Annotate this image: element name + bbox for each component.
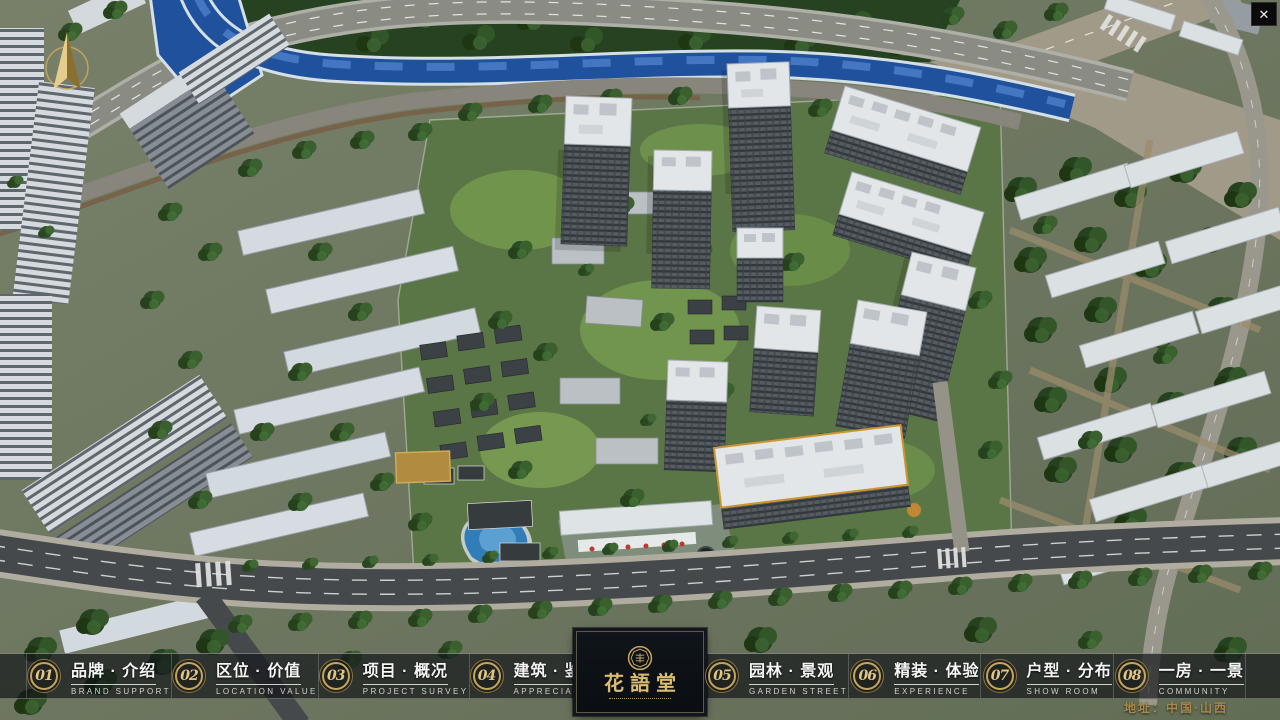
nav-subtitle: LOCATION VALUE [216, 687, 318, 696]
nav-group-right: 05 园林 · 景观 GARDEN STREET 06 精装 · 体验 EXPE… [704, 654, 1280, 698]
nav-badge-04: 04 [470, 659, 504, 693]
nav-title: 园林 · 景观 [749, 657, 834, 685]
presentation-stage: ✕ 01 品牌 · 介绍 BRAND SUPPORT 02 区位 · 价值 LO… [0, 0, 1280, 720]
nav-item-interior[interactable]: 06 精装 · 体验 EXPERIENCE [848, 654, 980, 698]
close-button[interactable]: ✕ [1251, 2, 1277, 26]
address-text: 地址：中国·山西 [1124, 699, 1228, 716]
logo-name: 花語堂 [598, 673, 682, 693]
nav-title: 项目 · 概况 [363, 657, 448, 685]
nav-item-brand[interactable]: 01 品牌 · 介绍 BRAND SUPPORT [26, 654, 171, 698]
bottom-nav-bar: 01 品牌 · 介绍 BRAND SUPPORT 02 区位 · 价值 LOCA… [0, 653, 1280, 699]
nav-badge-03: 03 [319, 659, 353, 693]
nav-subtitle: SHOW ROOM [1027, 687, 1101, 696]
atmosphere-tint [0, 0, 1280, 720]
nav-subtitle: EXPERIENCE [894, 687, 970, 696]
nav-badge-06: 06 [850, 659, 884, 693]
nav-subtitle: COMMUNITY [1159, 687, 1230, 696]
nav-item-garden[interactable]: 05 园林 · 景观 GARDEN STREET [704, 654, 848, 698]
nav-title: 区位 · 价值 [216, 657, 301, 685]
nav-group-left: 01 品牌 · 介绍 BRAND SUPPORT 02 区位 · 价值 LOCA… [0, 654, 576, 698]
nav-title: 户型 · 分布 [1027, 657, 1112, 685]
nav-subtitle: BRAND SUPPORT [71, 687, 171, 696]
nav-title: 精装 · 体验 [894, 657, 979, 685]
nav-title: 品牌 · 介绍 [71, 657, 156, 685]
nav-badge-05: 05 [705, 659, 739, 693]
logo-tagline-rule [609, 698, 671, 699]
nav-item-project[interactable]: 03 项目 · 概况 PROJECT SURVEY [318, 654, 469, 698]
compass-icon [36, 28, 98, 102]
nav-item-floorplan[interactable]: 07 户型 · 分布 SHOW ROOM [980, 654, 1112, 698]
logo-panel[interactable]: 花語堂 [576, 631, 704, 713]
nav-badge-01: 01 [27, 659, 61, 693]
nav-badge-07: 07 [983, 659, 1017, 693]
aerial-masterplan-view[interactable] [0, 0, 1280, 720]
nav-badge-02: 02 [172, 659, 206, 693]
logo-seal-icon [627, 645, 653, 671]
nav-subtitle: GARDEN STREET [749, 687, 848, 696]
nav-title: 一房 · 一景 [1159, 657, 1244, 685]
nav-subtitle: PROJECT SURVEY [363, 687, 469, 696]
nav-item-location[interactable]: 02 区位 · 价值 LOCATION VALUE [171, 654, 318, 698]
logo-wrap: 花語堂 [576, 654, 704, 698]
nav-item-community[interactable]: 08 一房 · 一景 COMMUNITY [1113, 654, 1246, 698]
close-icon: ✕ [1259, 8, 1270, 21]
nav-badge-08: 08 [1115, 659, 1149, 693]
